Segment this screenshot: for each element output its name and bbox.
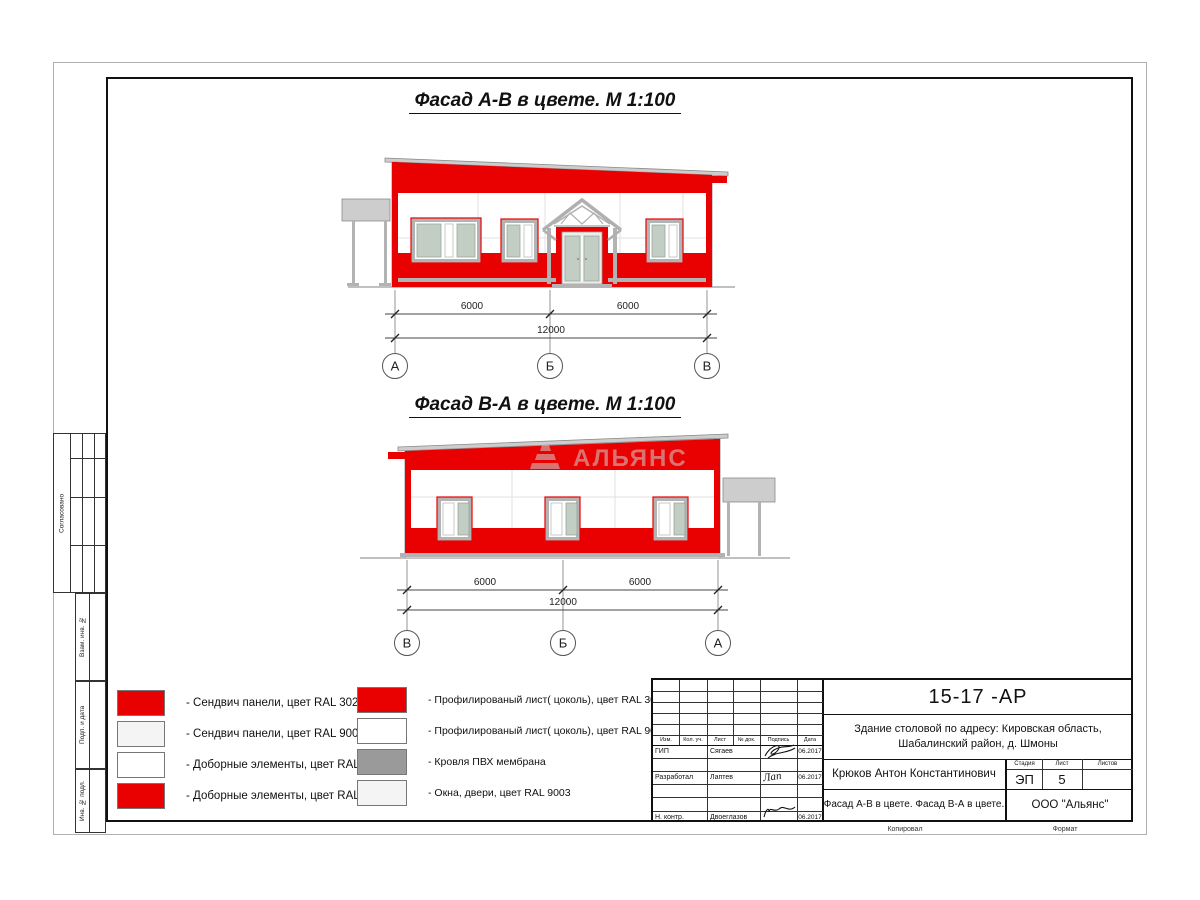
legend-item: - Профилированый лист( цоколь), цвет RAL… (357, 718, 668, 744)
legend-item: - Сендвич панели, цвет RAL 3020 (117, 690, 388, 716)
grid-line (70, 497, 106, 498)
legend-left-column: - Сендвич панели, цвет RAL 3020 - Сендви… (117, 690, 388, 809)
legend-item: - Профилированый лист( цоколь), цвет RAL… (357, 687, 668, 713)
dimension-value: 6000 (629, 577, 652, 588)
legend-label: - Сендвич панели, цвет RAL 3020 (186, 697, 365, 709)
side-label: Подп. и дата (76, 682, 89, 768)
window (437, 497, 472, 541)
left-canopy (342, 199, 391, 286)
approval-table: Согласовано (53, 433, 106, 593)
side-block-vzam: Взам. инв. № (75, 593, 106, 681)
axis-letter: В (703, 359, 712, 374)
legend-label: - Сендвич панели, цвет RAL 9003 (186, 728, 365, 740)
stamp-role: Н. контр. (655, 811, 707, 824)
facade-ab-drawing: 6000 6000 12000 А Б В (330, 140, 760, 388)
axis-letter: В (403, 636, 412, 651)
watermark-text: АЛЬЯНС (573, 445, 688, 472)
right-canopy (723, 478, 775, 556)
color-swatch (357, 687, 407, 713)
sheets-total (1082, 769, 1133, 789)
legend-item: - Окна, двери, цвет RAL 9003 (357, 780, 668, 806)
facade-ba-drawing: АЛЬЯНС (330, 420, 800, 665)
legend-label: - Профилированый лист( цоколь), цвет RAL… (428, 694, 668, 706)
legend-item: - Кровля ПВХ мембрана (357, 749, 668, 775)
sheets-label: Листов (1082, 759, 1133, 769)
side-block-inv: Инв. № подл. (75, 769, 106, 833)
dimension-lines: 6000 6000 12000 (397, 560, 728, 631)
sheet-number: 5 (1042, 769, 1082, 789)
stamp-col-header: № док. (733, 735, 760, 745)
dimension-lines: 6000 6000 12000 (385, 290, 717, 353)
axis-letter: А (391, 359, 400, 374)
stamp-role: Разработал (655, 771, 707, 784)
facade-ab-title: Фасад А-В в цвете. М 1:100 (330, 90, 760, 112)
approval-label-cell: Согласовано (54, 434, 71, 592)
signature (761, 802, 797, 822)
color-swatch (117, 783, 165, 809)
sheet-label: Лист (1042, 759, 1082, 769)
stage-label: Стадия (1007, 759, 1042, 769)
color-swatch (117, 752, 165, 778)
legend-item: - Доборные элементы, цвет RAL 9003 (117, 752, 388, 778)
format-label: Формат (1020, 826, 1110, 833)
facade-ba-title-text: Фасад В-А в цвете. М 1:100 (409, 394, 682, 418)
stamp-col-header: Изм. (653, 735, 679, 745)
dimension-value: 6000 (461, 301, 484, 312)
stamp-name: Двоеглазов (710, 811, 758, 824)
axis-letter: А (714, 636, 723, 651)
side-label-cell: Инв. № подл. (76, 770, 90, 832)
document-code: 15-17 -АР (823, 680, 1133, 714)
window (646, 219, 683, 263)
approval-label: Согласовано (54, 434, 70, 592)
side-label: Инв. № подл. (76, 770, 89, 832)
legend-item: - Доборные элементы, цвет RAL 3020 (117, 783, 388, 809)
signature-text: Лап (762, 770, 782, 784)
color-swatch (357, 780, 407, 806)
dimension-value: 6000 (617, 301, 640, 312)
stage-value: ЭП (1007, 769, 1042, 789)
side-label: Взам. инв. № (76, 594, 89, 680)
title-block: Изм. Кол. уч. Лист № док. Подпись Дата Г… (651, 678, 1133, 822)
legend-label: - Окна, двери, цвет RAL 9003 (428, 787, 571, 799)
axis-letter: Б (559, 636, 568, 651)
axis-markers: В Б А (395, 631, 731, 656)
window (411, 218, 481, 263)
legend-item: - Сендвич панели, цвет RAL 9003 (117, 721, 388, 747)
grid-line (70, 458, 106, 459)
stamp-date: 06.2017 (797, 745, 823, 758)
signature: Лап (763, 770, 797, 784)
stamp-name: Сягаев (710, 745, 758, 758)
chief-name: Крюков Антон Константинович (823, 759, 1005, 789)
legend-label: - Кровля ПВХ мембрана (428, 756, 546, 768)
axis-markers: А Б В (383, 354, 720, 379)
dimension-value: 12000 (537, 325, 565, 336)
color-swatch (117, 690, 165, 716)
stamp-name: Лаптев (710, 771, 758, 784)
dimension-value: 12000 (549, 597, 577, 608)
legend-right-column: - Профилированый лист( цоколь), цвет RAL… (357, 687, 668, 806)
legend-label: - Профилированый лист( цоколь), цвет RAL… (428, 725, 668, 737)
side-block-podp: Подп. и дата (75, 681, 106, 769)
stamp-date: 06.2017 (797, 811, 823, 824)
stamp-date: 06.2017 (797, 771, 823, 784)
stamp-col-header: Дата (797, 735, 823, 745)
color-swatch (117, 721, 165, 747)
window (545, 497, 580, 541)
project-description: Здание столовой по адресу: Кировская обл… (831, 714, 1125, 759)
window (653, 497, 688, 541)
facade-ba-title: Фасад В-А в цвете. М 1:100 (330, 394, 760, 416)
drawing-sheet: Согласовано Взам. инв. № Подп. и дата Ин… (0, 0, 1200, 900)
side-label-cell: Подп. и дата (76, 682, 90, 768)
color-swatch (357, 718, 407, 744)
stamp-col-header: Лист (707, 735, 733, 745)
copied-label: Копировал (860, 826, 950, 833)
grid-line (70, 545, 106, 546)
axis-letter: Б (546, 359, 555, 374)
company-name: ООО "Альянс" (1007, 789, 1133, 820)
sheet-subtitle: Фасад А-В в цвете. Фасад В-А в цвете. (823, 789, 1005, 820)
stamp-role: ГИП (655, 745, 705, 758)
signature (761, 740, 797, 762)
side-label-cell: Взам. инв. № (76, 594, 90, 680)
dimension-value: 6000 (474, 577, 497, 588)
facade-ab-title-text: Фасад А-В в цвете. М 1:100 (409, 90, 682, 114)
stamp-col-header: Кол. уч. (679, 735, 707, 745)
color-swatch (357, 749, 407, 775)
window (501, 219, 538, 263)
